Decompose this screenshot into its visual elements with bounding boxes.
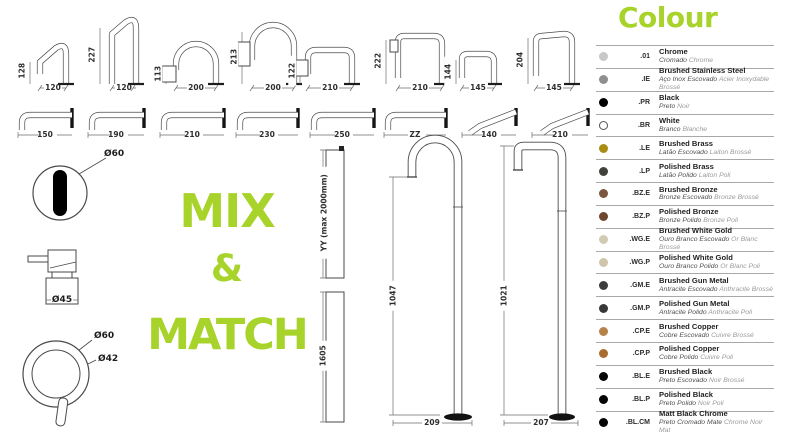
width-dimension: 120 bbox=[40, 84, 66, 92]
finish-code: .BL.P bbox=[614, 396, 650, 403]
colour-swatch bbox=[599, 304, 608, 313]
width-dimension: 210 bbox=[308, 84, 352, 92]
finish-names: Polished Bronze Bronze Polido Bronze Pol… bbox=[659, 208, 738, 225]
valve-body bbox=[296, 60, 308, 76]
angled-wall-spout-diagram: 140 bbox=[458, 106, 522, 140]
diameter-label: Ø45 bbox=[40, 296, 84, 305]
colour-row: .LP Polished Brass Latão Polido Laiton P… bbox=[596, 160, 774, 183]
tube-fill bbox=[412, 139, 458, 417]
gooseneck-spout-diagram: 122 210 bbox=[286, 40, 370, 94]
tube-fill bbox=[92, 115, 144, 130]
tube-fill bbox=[164, 115, 224, 130]
finish-names: White Branco Blanche bbox=[659, 117, 707, 134]
colour-row: .IE Brushed Stainless Steel Aço Inox Esc… bbox=[596, 69, 774, 92]
column-height-label: YY (max 2000mm) bbox=[320, 167, 328, 259]
headline-line: MIX bbox=[138, 190, 316, 232]
fixture-drawing bbox=[22, 328, 156, 432]
colour-swatch bbox=[599, 212, 608, 221]
colour-row: .BL.E Brushed Black Preto Escovado Noir … bbox=[596, 366, 774, 389]
finish-name-fr: Cuivre Poli bbox=[700, 354, 733, 361]
diameter-label: Ø60 bbox=[104, 150, 124, 159]
base-dimension: 207 bbox=[505, 419, 577, 427]
finish-name: White bbox=[659, 117, 707, 126]
mix-and-match-headline: MIX & MATCH bbox=[138, 190, 316, 356]
colour-row: .GM.E Brushed Gun Metal Antracite Escova… bbox=[596, 274, 774, 297]
fixture-drawing bbox=[20, 146, 138, 244]
diameter-label: Ø42 bbox=[98, 355, 118, 364]
gooseneck-spout-diagram: 144 145 bbox=[444, 46, 506, 94]
tube-outline bbox=[462, 54, 494, 84]
width-dimension: 210 bbox=[398, 84, 442, 92]
colour-swatch bbox=[599, 349, 608, 358]
finish-code: .BZ.P bbox=[614, 213, 650, 220]
tube-fill bbox=[314, 115, 374, 130]
finish-names: Brushed Black Preto Escovado Noir Brossé bbox=[659, 368, 744, 385]
finish-name-pt: Antracite Polido bbox=[659, 309, 707, 316]
finish-code: .CP.E bbox=[614, 328, 650, 335]
colour-swatch bbox=[599, 52, 608, 61]
length-dimension: 210 bbox=[160, 131, 224, 139]
inner-circle bbox=[32, 350, 80, 398]
tube-fill bbox=[240, 115, 298, 130]
spout-drawing bbox=[498, 136, 582, 434]
column-height-label: 1605 bbox=[319, 341, 327, 371]
tube-fill bbox=[308, 50, 352, 84]
finish-subtitle: Antracite Escovado Anthracite Brossé bbox=[659, 286, 773, 294]
finish-subtitle: Preto Cromado Mate Chrome Noir Mat bbox=[659, 419, 774, 434]
leader-line bbox=[79, 158, 106, 174]
finish-name-fr: Noir Poli bbox=[698, 400, 724, 407]
finish-name: Polished White Gold bbox=[659, 254, 760, 263]
finish-name-fr: Blanche bbox=[682, 126, 707, 133]
finish-code: .BZ.E bbox=[614, 190, 650, 197]
height-dimension: 213 bbox=[230, 42, 238, 72]
height-dimension: 113 bbox=[154, 59, 162, 89]
finish-names: Polished Brass Latão Polido Laiton Poli bbox=[659, 163, 730, 180]
finish-names: Matt Black Chrome Preto Cromado Mate Chr… bbox=[659, 410, 774, 434]
colour-legend-rows: .01 Chrome Cromado Chrome .IE Brushed St… bbox=[596, 45, 774, 434]
finish-code: .BL.CM bbox=[614, 419, 650, 426]
tube-fill bbox=[176, 44, 216, 84]
finish-names: Brushed Stainless Steel Aço Inox Escovad… bbox=[659, 67, 774, 92]
finish-subtitle: Aço Inox Escovado Acier Inoxydable Bross… bbox=[659, 76, 774, 92]
finish-name: Brushed Bronze bbox=[659, 186, 759, 195]
riser-column-diagram: 1605 bbox=[320, 288, 352, 428]
colour-swatch bbox=[599, 258, 608, 267]
tube-fill bbox=[22, 115, 72, 130]
headline-line: MATCH bbox=[138, 316, 316, 356]
finish-code: .PR bbox=[614, 99, 650, 106]
height-dimension: 122 bbox=[288, 56, 296, 86]
finish-subtitle: Cobre Polido Cuivre Poli bbox=[659, 354, 733, 362]
finish-name-pt: Latão Escovado bbox=[659, 149, 708, 156]
colour-row: .CP.E Brushed Copper Cobre Escovado Cuiv… bbox=[596, 320, 774, 343]
finish-names: Chrome Cromado Chrome bbox=[659, 48, 713, 65]
finish-name-fr: Or Blanc Poli bbox=[720, 263, 760, 270]
finish-name-fr: Noir Brossé bbox=[709, 377, 745, 384]
handle-stem bbox=[28, 256, 48, 262]
colour-swatch bbox=[599, 144, 608, 153]
colour-swatch bbox=[599, 98, 608, 107]
colour-swatch bbox=[599, 75, 608, 84]
finish-names: Polished Gun Metal Antracite Polido Anth… bbox=[659, 300, 752, 317]
finish-name: Brushed Brass bbox=[659, 140, 751, 149]
valve-body bbox=[162, 66, 176, 82]
finish-name: Brushed Copper bbox=[659, 323, 754, 332]
valve-body bbox=[238, 42, 250, 66]
finish-subtitle: Preto Noir bbox=[659, 103, 690, 111]
colour-swatch bbox=[599, 235, 608, 244]
finish-subtitle: Cromado Chrome bbox=[659, 57, 713, 65]
tube-outline bbox=[308, 50, 352, 84]
finish-name-pt: Aço Inox Escovado bbox=[659, 76, 717, 83]
finish-code: .GM.P bbox=[614, 305, 650, 312]
handle-body bbox=[48, 250, 76, 272]
finish-name: Polished Gun Metal bbox=[659, 300, 752, 309]
finish-name-fr: Anthracite Poli bbox=[708, 309, 752, 316]
finish-code: .BL.E bbox=[614, 373, 650, 380]
finish-name-pt: Ouro Branco Escovado bbox=[659, 236, 729, 243]
tube-fill bbox=[40, 46, 66, 84]
colour-swatch bbox=[599, 189, 608, 198]
handle-neck bbox=[52, 272, 72, 278]
width-dimension: 145 bbox=[536, 84, 572, 92]
wall-spout-diagram: ZZ bbox=[380, 106, 452, 140]
riser-column-diagram: YY (max 2000mm) bbox=[320, 146, 352, 286]
base-dimension: 209 bbox=[396, 419, 468, 427]
colour-swatch bbox=[599, 167, 608, 176]
finish-names: Brushed Brass Latão Escovado Laiton Bros… bbox=[659, 140, 751, 157]
tube-fill bbox=[388, 115, 446, 130]
finish-name-pt: Cromado bbox=[659, 57, 687, 64]
finish-code: .IE bbox=[614, 76, 650, 83]
floor-spout-diagram: 1047 209 bbox=[388, 136, 474, 434]
colour-swatch bbox=[599, 372, 608, 381]
spout-slot bbox=[53, 170, 67, 216]
finish-names: Black Preto Noir bbox=[659, 94, 690, 111]
colour-row: .LE Brushed Brass Latão Escovado Laiton … bbox=[596, 137, 774, 160]
finish-code: .BR bbox=[614, 122, 650, 129]
finish-code: .LP bbox=[614, 168, 650, 175]
colour-swatch bbox=[599, 418, 608, 427]
tube-outline bbox=[518, 146, 562, 417]
headline-line: & bbox=[138, 252, 316, 286]
lever-top-view: Ø60 Ø42 bbox=[22, 328, 156, 432]
finish-name-pt: Ouro Branco Polido bbox=[659, 263, 718, 270]
finish-name-fr: Noir bbox=[677, 103, 689, 110]
length-dimension: 150 bbox=[18, 131, 72, 139]
finish-names: Brushed Gun Metal Antracite Escovado Ant… bbox=[659, 277, 773, 294]
height-dimension: 227 bbox=[88, 40, 96, 70]
finish-name-pt: Bronze Polido bbox=[659, 217, 701, 224]
finish-subtitle: Branco Blanche bbox=[659, 126, 707, 134]
wall-spout-diagram: 250 bbox=[306, 106, 380, 140]
finish-subtitle: Cobre Escovado Cuivre Brossé bbox=[659, 332, 754, 340]
column-body bbox=[326, 150, 344, 278]
tube-fill bbox=[462, 54, 494, 84]
finish-name-fr: Chrome bbox=[689, 57, 713, 64]
finish-name-pt: Cobre Polido bbox=[659, 354, 698, 361]
finish-subtitle: Preto Polido Noir Poli bbox=[659, 400, 724, 408]
diameter-label: Ø60 bbox=[94, 332, 114, 341]
finish-name-pt: Preto Cromado Mate bbox=[659, 419, 722, 426]
gooseneck-spout-diagram: 128 120 bbox=[16, 38, 78, 94]
colour-row: .WG.E Brushed White Gold Ouro Branco Esc… bbox=[596, 229, 774, 252]
gooseneck-spout-diagram: 227 120 bbox=[84, 14, 148, 94]
finish-names: Brushed White Gold Ouro Branco Escovado … bbox=[659, 227, 774, 252]
gooseneck-spout-diagram: 113 200 bbox=[152, 38, 234, 94]
finish-name: Polished Black bbox=[659, 391, 724, 400]
finish-name-fr: Bronze Poli bbox=[703, 217, 738, 224]
height-dimension: 222 bbox=[374, 46, 382, 76]
finish-name: Polished Bronze bbox=[659, 208, 738, 217]
colour-swatch bbox=[599, 281, 608, 290]
tube-outline bbox=[412, 139, 458, 417]
finish-name: Polished Copper bbox=[659, 345, 733, 354]
finish-subtitle: Antracite Polido Anthracite Poli bbox=[659, 309, 752, 317]
finish-subtitle: Ouro Branco Escovado Or Blanc Brossé bbox=[659, 236, 774, 252]
finish-names: Polished White Gold Ouro Branco Polido O… bbox=[659, 254, 760, 271]
finish-name-pt: Preto Polido bbox=[659, 400, 696, 407]
finish-name: Matt Black Chrome bbox=[659, 410, 774, 419]
valve-body bbox=[390, 40, 398, 52]
length-dimension: 230 bbox=[236, 131, 298, 139]
spout-drawing bbox=[388, 136, 474, 434]
tube-fill bbox=[536, 34, 572, 84]
colour-row: .BR White Branco Blanche bbox=[596, 115, 774, 138]
height-dimension: 204 bbox=[516, 45, 524, 75]
finish-name: Polished Brass bbox=[659, 163, 730, 172]
finish-name-pt: Latão Polido bbox=[659, 172, 697, 179]
width-dimension: 120 bbox=[112, 84, 136, 92]
colour-row: .BL.P Polished Black Preto Polido Noir P… bbox=[596, 389, 774, 412]
finish-name-fr: Laiton Poli bbox=[699, 172, 731, 179]
colour-swatch bbox=[599, 327, 608, 336]
wall-spout-diagram: 230 bbox=[232, 106, 304, 140]
finish-names: Brushed Bronze Bronze Escovado Bronze Br… bbox=[659, 186, 759, 203]
colour-legend-title: Colour bbox=[618, 4, 717, 32]
finish-names: Polished Copper Cobre Polido Cuivre Poli bbox=[659, 345, 733, 362]
handle-side-view: Ø45 bbox=[26, 248, 106, 312]
colour-row: .PR Black Preto Noir bbox=[596, 92, 774, 115]
finish-name-pt: Branco bbox=[659, 126, 681, 133]
finish-subtitle: Bronze Polido Bronze Poli bbox=[659, 217, 738, 225]
colour-row: .GM.P Polished Gun Metal Antracite Polid… bbox=[596, 297, 774, 320]
colour-row: .CP.P Polished Copper Cobre Polido Cuivr… bbox=[596, 343, 774, 366]
tube-outline bbox=[536, 34, 572, 84]
finish-name-fr: Cuivre Brossé bbox=[711, 332, 754, 339]
finish-names: Brushed Copper Cobre Escovado Cuivre Bro… bbox=[659, 323, 754, 340]
tube-fill bbox=[518, 146, 562, 417]
finish-code: .CP.P bbox=[614, 350, 650, 357]
colour-swatch bbox=[599, 395, 608, 404]
finish-subtitle: Ouro Branco Polido Or Blanc Poli bbox=[659, 263, 760, 271]
finish-code: .LE bbox=[614, 145, 650, 152]
colour-row: .BZ.E Brushed Bronze Bronze Escovado Bro… bbox=[596, 183, 774, 206]
finish-name: Black bbox=[659, 94, 690, 103]
finish-name-pt: Bronze Escovado bbox=[659, 194, 712, 201]
finish-code: .WG.E bbox=[614, 236, 650, 243]
colour-row: .WG.P Polished White Gold Ouro Branco Po… bbox=[596, 252, 774, 275]
finish-code: .01 bbox=[614, 53, 650, 60]
finish-name-pt: Cobre Escovado bbox=[659, 332, 709, 339]
height-dimension: 144 bbox=[444, 57, 452, 87]
gooseneck-spout-diagram: 204 145 bbox=[516, 28, 586, 94]
angled-wall-spout-diagram: 210 bbox=[528, 106, 594, 140]
column-body bbox=[326, 292, 344, 422]
finish-name-fr: Anthracite Brossé bbox=[719, 286, 773, 293]
finish-name-fr: Laiton Brossé bbox=[710, 149, 752, 156]
finish-name: Brushed White Gold bbox=[659, 227, 774, 236]
finish-name-pt: Preto Escovado bbox=[659, 377, 707, 384]
width-dimension: 200 bbox=[176, 84, 216, 92]
finish-names: Polished Black Preto Polido Noir Poli bbox=[659, 391, 724, 408]
height-dimension: 128 bbox=[18, 56, 26, 86]
finish-name: Brushed Black bbox=[659, 368, 744, 377]
finish-name: Chrome bbox=[659, 48, 713, 57]
height-dimension: 1021 bbox=[500, 281, 508, 311]
colour-row: .BL.CM Matt Black Chrome Preto Cromado M… bbox=[596, 412, 774, 434]
finish-name: Brushed Gun Metal bbox=[659, 277, 773, 286]
spec-sheet: 128 120 227 120 113 200 bbox=[0, 0, 800, 434]
width-dimension: 145 bbox=[462, 84, 494, 92]
wall-spout-diagram: 210 bbox=[156, 106, 230, 140]
finish-subtitle: Latão Escovado Laiton Brossé bbox=[659, 149, 751, 157]
finish-name-fr: Bronze Brossé bbox=[714, 194, 759, 201]
tube-outline bbox=[398, 36, 442, 84]
height-dimension: 1047 bbox=[389, 281, 397, 311]
finish-subtitle: Preto Escovado Noir Brossé bbox=[659, 377, 744, 385]
finish-code: .GM.E bbox=[614, 282, 650, 289]
column-cap bbox=[339, 146, 344, 151]
colour-swatch bbox=[599, 121, 608, 130]
wall-spout-diagram: 190 bbox=[84, 106, 150, 140]
finish-name-pt: Antracite Escovado bbox=[659, 286, 718, 293]
finish-subtitle: Bronze Escovado Bronze Brossé bbox=[659, 194, 759, 202]
finish-name: Brushed Stainless Steel bbox=[659, 67, 774, 76]
length-dimension: 250 bbox=[310, 131, 374, 139]
finish-subtitle: Latão Polido Laiton Poli bbox=[659, 172, 730, 180]
spout-hole-top-view: Ø60 bbox=[20, 146, 138, 244]
length-dimension: 190 bbox=[88, 131, 144, 139]
finish-name-pt: Preto bbox=[659, 103, 675, 110]
floor-spout-diagram: 1021 207 bbox=[498, 136, 582, 434]
tube-fill bbox=[112, 20, 136, 84]
tube-fill bbox=[398, 36, 442, 84]
finish-code: .WG.P bbox=[614, 259, 650, 266]
wall-spout-diagram: 150 bbox=[14, 106, 78, 140]
colour-legend: Colour .01 Chrome Cromado Chrome .IE Bru… bbox=[596, 0, 774, 434]
